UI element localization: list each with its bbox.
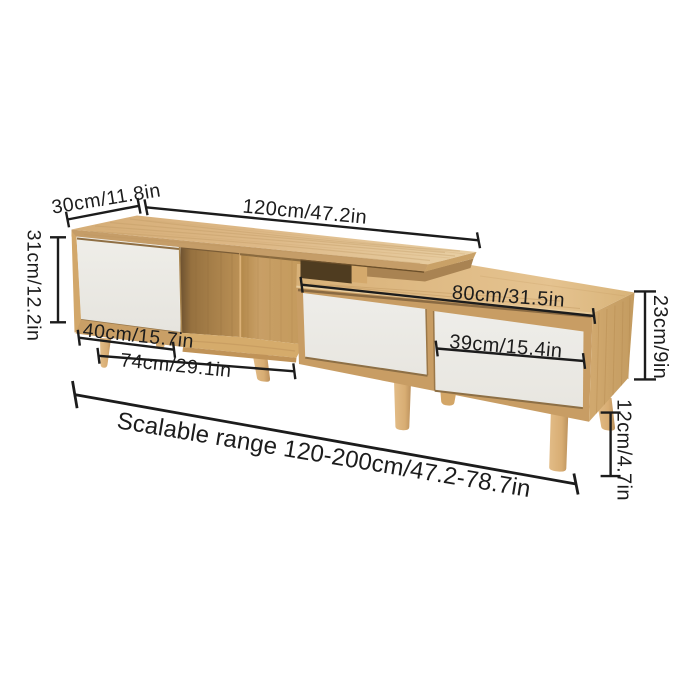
svg-text:31cm/12.2in: 31cm/12.2in (23, 230, 45, 342)
svg-text:12cm/4.7in: 12cm/4.7in (612, 399, 634, 501)
svg-text:23cm/9in: 23cm/9in (649, 295, 671, 379)
